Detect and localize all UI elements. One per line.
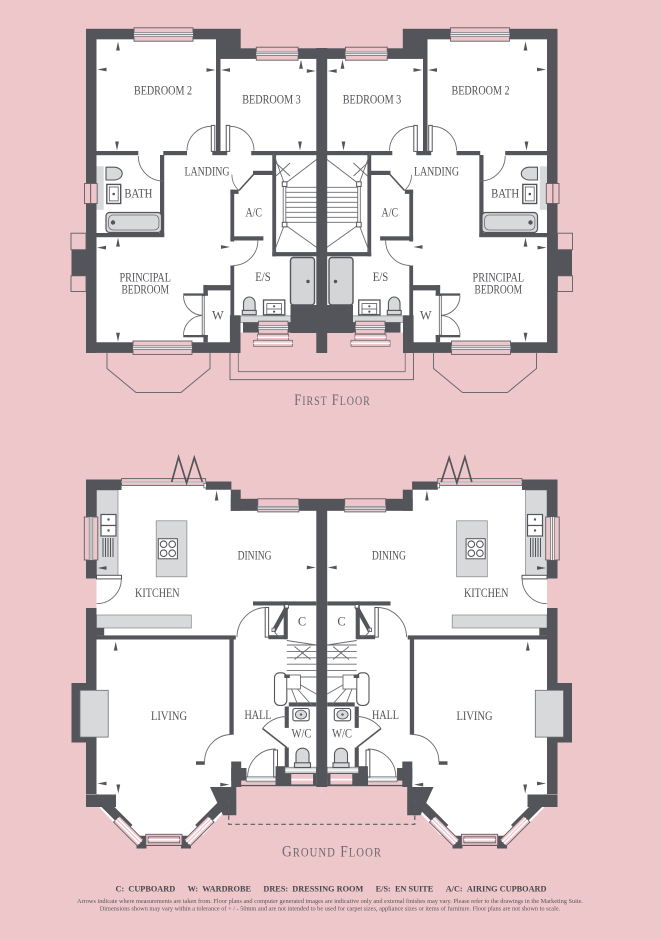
svg-text:A/C: A/C [245,205,262,219]
svg-text:LANDING: LANDING [185,164,230,178]
svg-text:HALL: HALL [372,708,399,722]
svg-text:W: W [212,309,224,323]
svg-text:BATH: BATH [124,186,152,200]
svg-text:BEDROOM 3: BEDROOM 3 [242,93,301,107]
svg-text:FIRST FLOOR: FIRST FLOOR [294,392,371,409]
svg-text:BEDROOM: BEDROOM [475,282,523,296]
svg-text:BEDROOM 3: BEDROOM 3 [343,93,402,107]
svg-text:HALL: HALL [245,708,272,722]
svg-text:LANDING: LANDING [414,164,459,178]
svg-text:Arrows indicate where measurem: Arrows indicate where measurements are t… [77,898,583,905]
svg-text:A/C: A/C [382,205,399,219]
svg-text:BEDROOM 2: BEDROOM 2 [134,84,192,98]
svg-text:LIVING: LIVING [151,709,187,723]
svg-text:DINING: DINING [372,549,406,563]
svg-text:Dimensions shown may vary with: Dimensions shown may vary within a toler… [100,906,561,913]
svg-text:LIVING: LIVING [457,709,493,723]
svg-text:C: C [298,614,306,628]
svg-text:E/S: E/S [373,270,389,284]
svg-text:W: W [420,309,432,323]
svg-text:KITCHEN: KITCHEN [135,586,180,600]
svg-text:BATH: BATH [491,186,519,200]
svg-text:DINING: DINING [238,549,272,563]
svg-text:C: CUPBOARD W: WARDROBE: C: CUPBOARD W: WARDROBE DRES: DRESSING R… [116,884,547,894]
svg-text:BEDROOM 2: BEDROOM 2 [452,84,510,98]
svg-text:C: C [337,614,345,628]
svg-text:W/C: W/C [292,727,312,741]
svg-text:E/S: E/S [255,270,271,284]
svg-text:BEDROOM: BEDROOM [121,282,169,296]
svg-text:KITCHEN: KITCHEN [464,586,509,600]
svg-text:W/C: W/C [332,727,352,741]
svg-text:GROUND FLOOR: GROUND FLOOR [282,844,382,861]
